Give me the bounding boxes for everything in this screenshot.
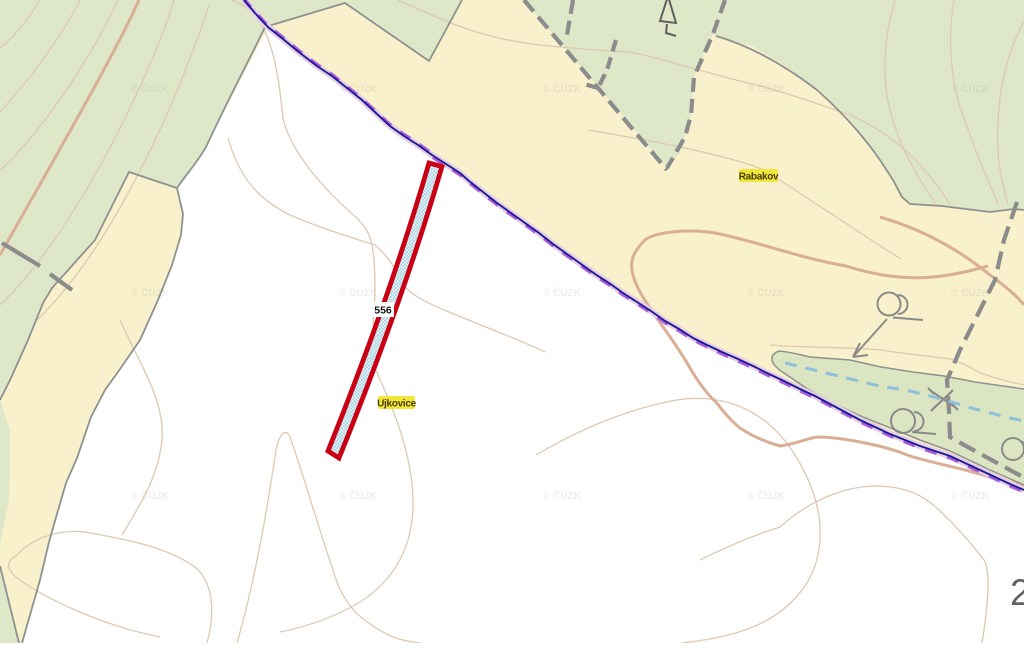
svg-text:© ČÚZK: © ČÚZK [951,489,990,502]
svg-text:© ČÚZK: © ČÚZK [131,489,170,502]
svg-text:© ČÚZK: © ČÚZK [339,489,378,502]
svg-text:© ČÚZK: © ČÚZK [131,82,170,95]
svg-text:Rabakov: Rabakov [739,172,779,183]
svg-text:© ČÚZK: © ČÚZK [747,489,786,502]
svg-text:© ČÚZK: © ČÚZK [339,286,378,299]
svg-text:Ujkovice: Ujkovice [377,399,416,410]
svg-text:© ČÚZK: © ČÚZK [131,286,170,299]
svg-text:© ČÚZK: © ČÚZK [951,286,990,299]
svg-text:556: 556 [374,305,392,317]
svg-text:© ČÚZK: © ČÚZK [747,286,786,299]
svg-text:© ČÚZK: © ČÚZK [543,286,582,299]
svg-text:© ČÚZK: © ČÚZK [951,82,990,95]
svg-text:© ČÚZK: © ČÚZK [339,82,378,95]
svg-text:2: 2 [1010,572,1024,613]
svg-text:© ČÚZK: © ČÚZK [543,82,582,95]
svg-text:© ČÚZK: © ČÚZK [747,82,786,95]
svg-text:© ČÚZK: © ČÚZK [543,489,582,502]
